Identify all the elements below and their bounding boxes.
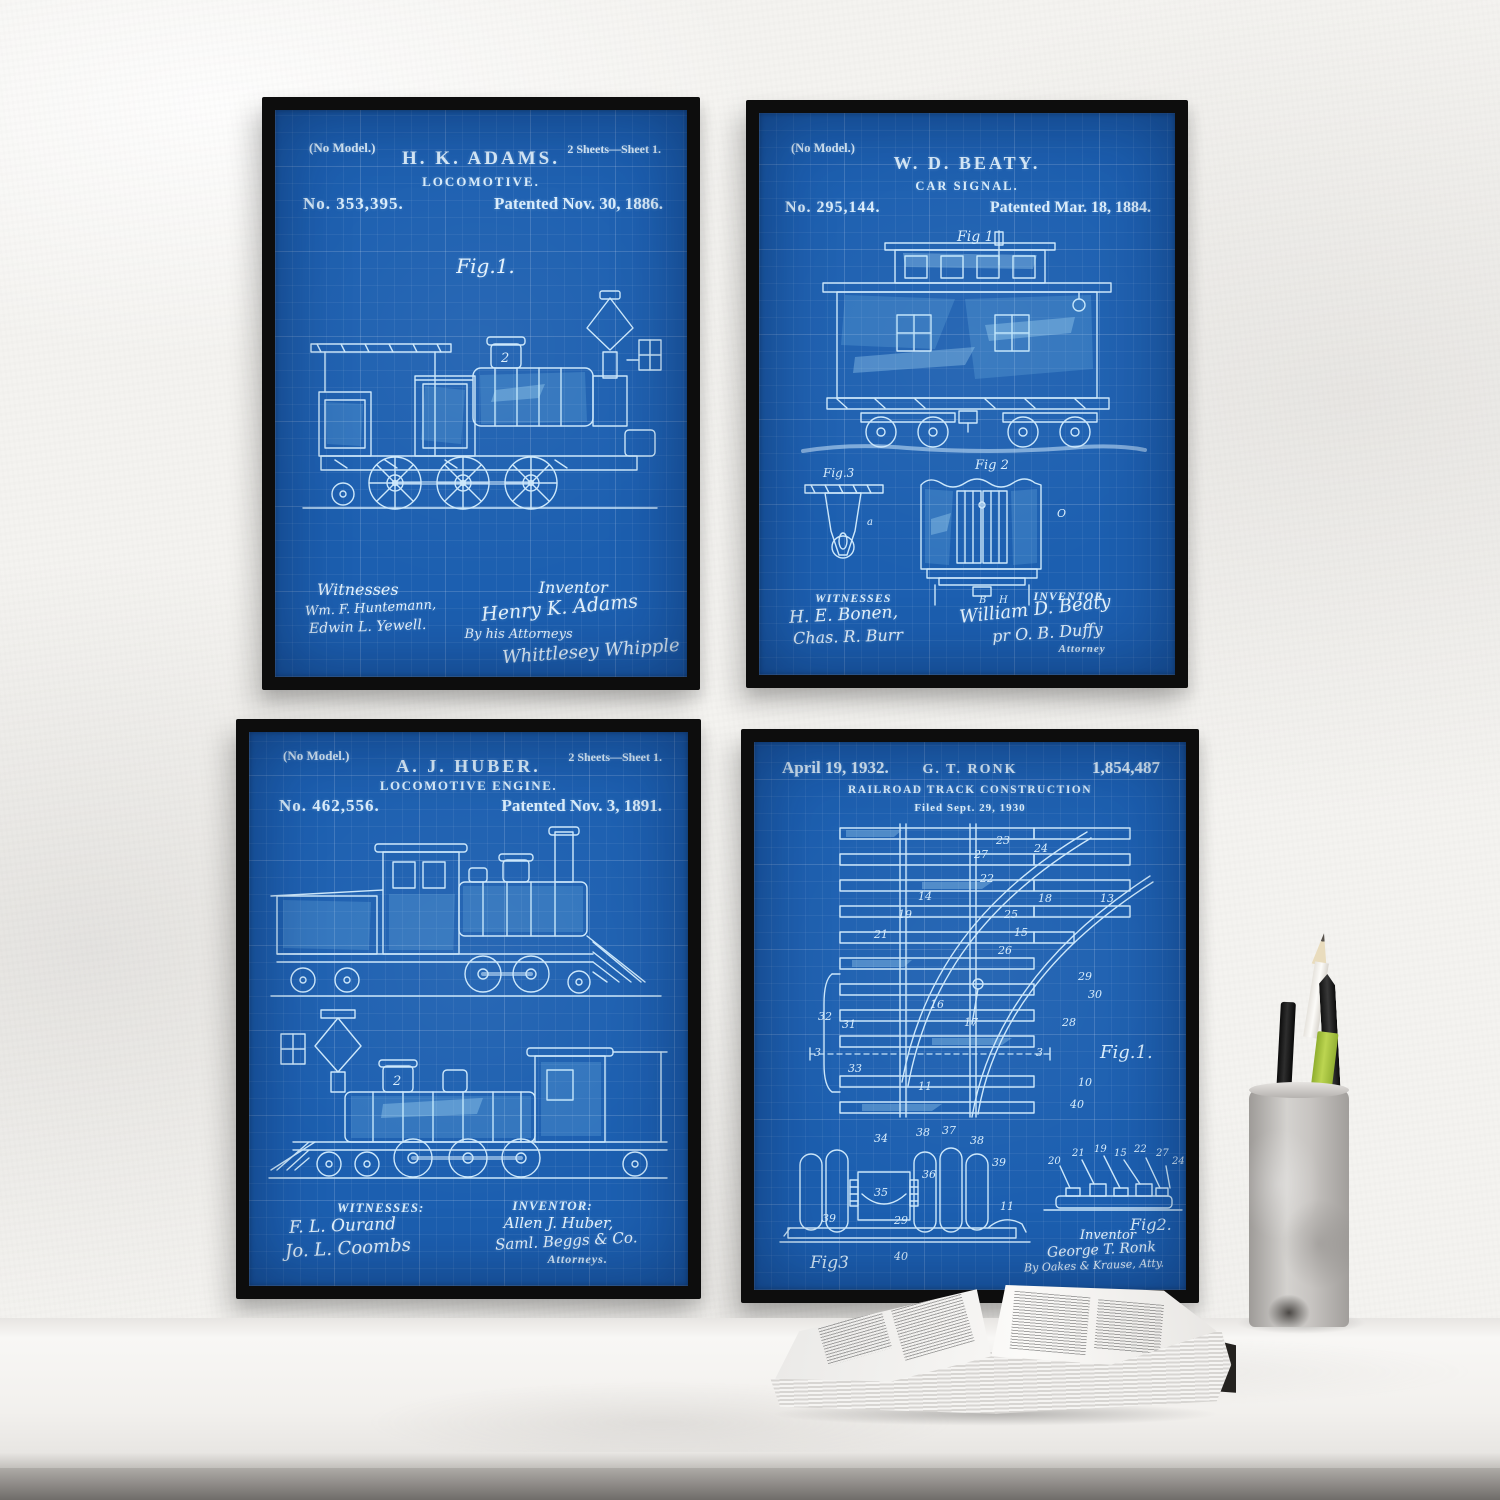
figure-label: Fig 2 (974, 458, 1009, 473)
part-number: 10 (1078, 1076, 1092, 1089)
part-number: 33 (848, 1062, 862, 1075)
part-number: 40 (1069, 1098, 1084, 1111)
patent-number: No. 295,144. (785, 199, 881, 217)
two-locomotives-drawing: 2 (263, 824, 673, 1184)
part-number: 34 (874, 1132, 888, 1145)
part-number: 28 (1061, 1016, 1076, 1029)
page-text-column (814, 1296, 892, 1366)
part-number: 27 (973, 848, 988, 861)
part-number: 39 (822, 1212, 836, 1225)
part-number: 24 (1171, 1156, 1185, 1167)
part-number: 23 (995, 834, 1010, 847)
patent-date: April 19, 1932. (782, 758, 889, 778)
part-number: 21 (873, 928, 888, 941)
figure-label: Fig.3 (822, 466, 855, 480)
part-number: 14 (918, 890, 932, 903)
dome-number: 2 (392, 1074, 401, 1089)
part-number: 31 (842, 1018, 856, 1031)
part-number: 20 (1047, 1156, 1061, 1167)
caboose-drawing: Fig 1 (775, 229, 1159, 459)
dome-number: 2 (500, 351, 509, 366)
inventor-signature: Allen J. Huber, (504, 1214, 614, 1232)
part-number: 30 (1088, 988, 1102, 1001)
attorneys-label: Attorneys. (548, 1252, 608, 1267)
part-number: 35 (874, 1186, 888, 1199)
part-number: 13 (1100, 892, 1114, 905)
patent-title: CAR SIGNAL. (915, 179, 1018, 194)
part-number: 19 (898, 908, 912, 921)
patent-date: Patented Nov. 3, 1891. (501, 796, 662, 816)
part-number: 11 (918, 1080, 932, 1093)
attorney-label: Attorney (1059, 643, 1106, 655)
part-letter: O (1057, 507, 1066, 520)
track-profile-drawing: 20 21 19 15 22 27 24 Fig2. (1038, 1140, 1186, 1235)
witness-signature: F. L. Ourand (289, 1214, 397, 1238)
no-model-note: (No Model.) (791, 141, 855, 156)
track-cross-section-drawing: 34 38 37 38 39 36 35 39 29 11 40 Fig3 (774, 1124, 1038, 1276)
part-number: 29 (893, 1214, 908, 1227)
figure-label: Fig.1. (1099, 1042, 1153, 1063)
patent-title: LOCOMOTIVE ENGINE. (380, 778, 557, 794)
poster-huber-locomotive-engine: (No Model.) A. J. HUBER. 2 Sheets—Sheet … (249, 732, 688, 1286)
witness-signature: Edwin L. Yewell. (309, 617, 427, 637)
poster-beaty-car-signal: (No Model.) W. D. BEATY. CAR SIGNAL. No.… (759, 113, 1175, 675)
figure-label: Fig3 (809, 1253, 849, 1273)
per-attorney-signature: pr O. B. Duffy (991, 619, 1103, 646)
page-text-column (1010, 1291, 1091, 1355)
part-number: 3 (814, 1046, 821, 1059)
car-end-view-drawing: Fig 2 O B H (887, 459, 1077, 609)
by-attorneys-label: By his Attorneys (465, 627, 573, 642)
part-number: 25 (1003, 908, 1018, 921)
marble-shelf-edge (0, 1452, 1500, 1468)
shelf-front-shadow (0, 1468, 1500, 1500)
page-text-column (889, 1285, 974, 1361)
part-number: 18 (1038, 892, 1052, 905)
part-number: 15 (1014, 926, 1028, 939)
marble-shelf-top (0, 1318, 1500, 1452)
frame-huber-locomotive-engine: (No Model.) A. J. HUBER. 2 Sheets—Sheet … (236, 719, 701, 1299)
part-number: 16 (930, 998, 944, 1011)
part-number: 19 (1094, 1144, 1107, 1155)
part-number: 26 (997, 944, 1012, 957)
no-model-note: (No Model.) (309, 140, 375, 156)
part-number: 15 (1114, 1148, 1127, 1159)
witness-signature: Wm. F. Huntemann, (305, 598, 437, 620)
inventor-label: INVENTOR: (512, 1198, 592, 1214)
witness-signature: Chas. R. Burr (793, 625, 904, 648)
patent-number: No. 353,395. (303, 194, 404, 214)
patent-inventor-name: H. K. ADAMS. (402, 148, 560, 170)
patent-title: LOCOMOTIVE. (422, 174, 540, 190)
poster-adams-locomotive: (No Model.) H. K. ADAMS. 2 Sheets—Sheet … (275, 110, 687, 677)
witnesses-label: Witnesses (317, 580, 399, 599)
part-number: 37 (942, 1124, 956, 1137)
part-number: 36 (922, 1168, 936, 1181)
filed-date: Filed Sept. 29, 1930 (914, 802, 1025, 814)
sheets-note: 2 Sheets—Sheet 1. (567, 142, 661, 157)
locomotive-drawing: 2 (295, 280, 665, 525)
part-number: 22 (979, 872, 994, 885)
frame-adams-locomotive: (No Model.) H. K. ADAMS. 2 Sheets—Sheet … (262, 97, 700, 690)
patent-title: RAILROAD TRACK CONSTRUCTION (848, 784, 1092, 796)
patent-inventor-name: A. J. HUBER. (396, 756, 541, 777)
part-number: 40 (893, 1250, 908, 1263)
part-number: 38 (916, 1126, 930, 1139)
page-text-column (1094, 1299, 1164, 1355)
part-number: 21 (1071, 1148, 1085, 1159)
witness-signature: Jo. L. Coombs (285, 1235, 412, 1263)
part-number: 39 (992, 1156, 1006, 1169)
bracket-detail-drawing: Fig.3 a (799, 465, 889, 583)
patent-number: 1,854,487 (1092, 758, 1160, 778)
frame-ronk-railroad-track: April 19, 1932. G. T. RONK 1,854,487 RAI… (741, 729, 1199, 1303)
part-number: 22 (1133, 1144, 1147, 1155)
part-number: 24 (1033, 842, 1048, 855)
part-number: 3 (1036, 1046, 1043, 1059)
open-book (756, 1278, 1236, 1418)
attorney-signature: Saml. Beggs & Co. (494, 1228, 637, 1253)
concrete-pencil-cup (1249, 1089, 1349, 1327)
part-number: 27 (1155, 1148, 1169, 1159)
part-number: 29 (1077, 970, 1092, 983)
attorney-signature: By Oakes & Krause, Atty. (1024, 1257, 1164, 1275)
part-number: 32 (818, 1010, 832, 1023)
witness-signature: H. E. Bonen, (789, 602, 899, 628)
patent-date: Patented Nov. 30, 1886. (494, 194, 663, 214)
no-model-note: (No Model.) (283, 748, 349, 764)
poster-mockup-scene: (No Model.) H. K. ADAMS. 2 Sheets—Sheet … (0, 0, 1500, 1500)
patent-number: No. 462,556. (279, 796, 380, 816)
part-letter: a (867, 517, 873, 528)
patent-inventor-name: W. D. BEATY. (894, 153, 1041, 174)
part-number: 38 (970, 1134, 984, 1147)
frame-beaty-car-signal: (No Model.) W. D. BEATY. CAR SIGNAL. No.… (746, 100, 1188, 688)
patent-inventor-name: G. T. RONK (923, 762, 1018, 778)
patent-date: Patented Mar. 18, 1884. (990, 199, 1151, 217)
track-switch-drawing: 23 27 24 22 18 13 14 19 25 15 21 26 29 3… (782, 824, 1172, 1119)
sheets-note: 2 Sheets—Sheet 1. (568, 750, 662, 765)
witnesses-label: WITNESSES: (337, 1200, 424, 1216)
poster-ronk-railroad-track: April 19, 1932. G. T. RONK 1,854,487 RAI… (754, 742, 1186, 1290)
part-number: 11 (1000, 1200, 1014, 1213)
figure-label: Fig.1. (456, 254, 515, 278)
part-number: 17 (964, 1016, 978, 1029)
